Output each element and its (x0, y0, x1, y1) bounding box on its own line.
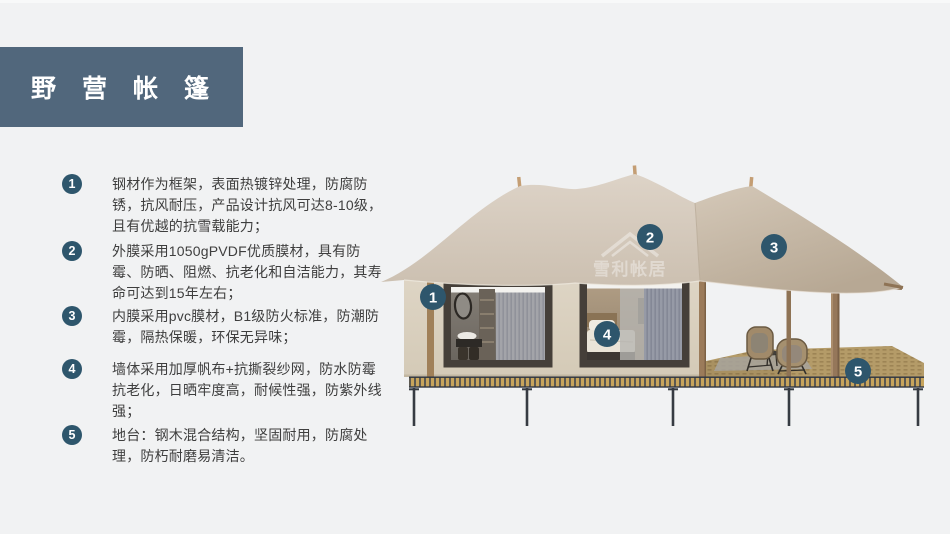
page-title: 野营帐篷 (0, 69, 235, 105)
feature-text: 外膜采用1050gPVDF优质膜材，具有防霉、防晒、阻燃、抗老化和自洁能力，其寿… (112, 241, 384, 304)
feature-number-badge: 4 (62, 359, 82, 379)
callout-number: 1 (429, 289, 437, 306)
callout-1: 1 (420, 284, 446, 310)
window-bedroom (582, 278, 687, 365)
feature-number-badge: 1 (62, 174, 82, 194)
callout-4: 4 (594, 321, 620, 347)
curtain (496, 293, 545, 361)
porch-post-front (787, 288, 792, 377)
feature-text: 墙体采用加厚帆布+抗撕裂纱网，防水防霉抗老化，日晒牢度高，耐候性强，防紫外线强； (112, 359, 384, 422)
callout-number: 5 (854, 363, 862, 380)
canopy-right (695, 186, 903, 293)
feature-number-badge: 5 (62, 425, 82, 445)
top-edge-strip (0, 0, 950, 3)
deck-band (409, 377, 924, 388)
watermark-text: 雪利帐居 (593, 259, 667, 279)
window-bathroom (446, 282, 550, 365)
feature-number-badge: 3 (62, 306, 82, 326)
callout-5: 5 (845, 358, 871, 384)
feature-text: 内膜采用pvc膜材，B1级防火标准，防潮防霉，隔热保暖，环保无异味； (112, 306, 384, 348)
deck-legs (409, 388, 923, 426)
callout-3: 3 (761, 234, 787, 260)
tent-illustration: 雪利帐居 12345 (378, 148, 950, 460)
basket (458, 347, 468, 360)
feature-text: 钢材作为框架，表面热镀锌处理，防腐防锈，抗风耐压，产品设计抗风可达8-10级，且… (112, 174, 384, 237)
corner-post-shade (705, 281, 707, 377)
sink (458, 332, 477, 340)
callout-2: 2 (637, 224, 663, 250)
feature-item-2: 2外膜采用1050gPVDF优质膜材，具有防霉、防晒、阻燃、抗老化和自洁能力，其… (62, 241, 392, 304)
feature-text: 地台：钢木混合结构，坚固耐用，防腐处理，防朽耐磨易清洁。 (112, 425, 384, 467)
feature-item-3: 3内膜采用pvc膜材，B1级防火标准，防潮防霉，隔热保暖，环保无异味； (62, 306, 392, 348)
callout-number: 2 (646, 229, 654, 246)
vanity (456, 339, 482, 347)
callout-number: 3 (770, 239, 778, 256)
feature-item-4: 4墙体采用加厚帆布+抗撕裂纱网，防水防霉抗老化，日晒牢度高，耐候性强，防紫外线强… (62, 359, 392, 422)
feature-number-badge: 2 (62, 241, 82, 261)
title-banner: 野营帐篷 (0, 47, 243, 127)
callout-number: 4 (603, 326, 612, 343)
curtain (644, 289, 682, 361)
feature-list: 1钢材作为框架，表面热镀锌处理，防腐防锈，抗风耐压，产品设计抗风可达8-10级，… (62, 174, 392, 471)
feature-item-1: 1钢材作为框架，表面热镀锌处理，防腐防锈，抗风耐压，产品设计抗风可达8-10级，… (62, 174, 392, 237)
sheer-curtain (620, 289, 645, 361)
feature-item-5: 5地台：钢木混合结构，坚固耐用，防腐处理，防朽耐磨易清洁。 (62, 425, 392, 467)
basket (469, 347, 479, 360)
curtain-rail (451, 287, 545, 293)
slide: 野营帐篷 1钢材作为框架，表面热镀锌处理，防腐防锈，抗风耐压，产品设计抗风可达8… (0, 0, 950, 534)
